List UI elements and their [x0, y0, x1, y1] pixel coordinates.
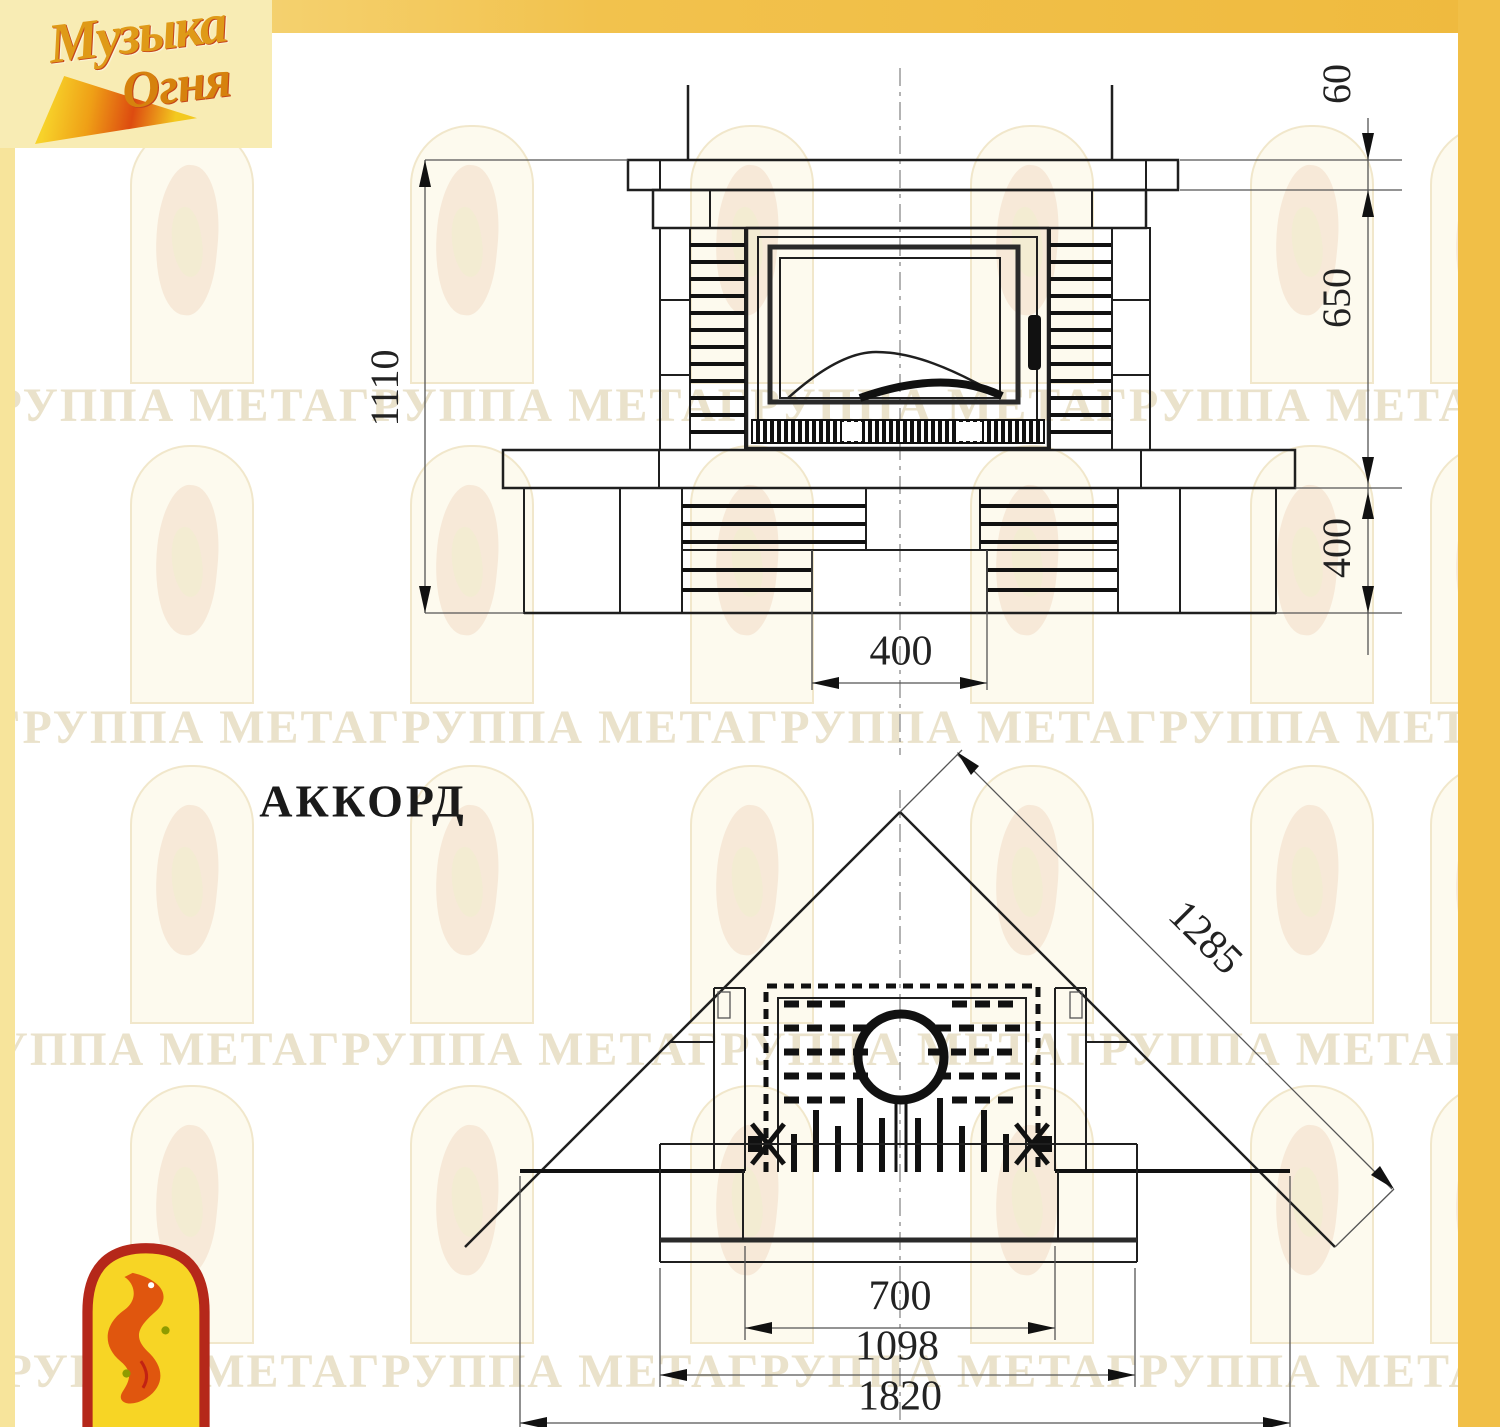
left-gold-band: [0, 0, 15, 1427]
grill-strip: [752, 420, 1044, 443]
plan-view: 1285 700 1098 1820: [465, 750, 1394, 1427]
mantel-shelf: [628, 160, 1178, 190]
dim-label-mantel-thickness: 60: [1314, 64, 1359, 104]
dim-label-base-height: 400: [1314, 518, 1359, 578]
base-slab-plan: [660, 1144, 1137, 1262]
catalog-page: ГРУППА МЕТАГРУППА МЕТАГРУППА МЕТАГРУППА …: [0, 0, 1500, 1427]
brand-logo: Музыка Огня: [0, 0, 272, 148]
arch-flame-icon: [78, 1238, 214, 1427]
firebox-door: [747, 228, 1048, 448]
dim-label-opening-width: 700: [869, 1274, 932, 1320]
model-title: АККОРД: [259, 776, 466, 827]
dim-label-body-width: 1098: [855, 1324, 939, 1370]
right-gold-band: [1458, 0, 1500, 1427]
dim-label-total-width: 1820: [858, 1374, 942, 1420]
front-view: 1110 60 650 400 400: [362, 64, 1402, 755]
brand-word-2: Огня: [119, 50, 234, 122]
fireplace-technical-drawing: 1110 60 650 400 400 АККОРД: [0, 0, 1500, 1427]
dimension-right-chain: [1180, 118, 1402, 655]
hearth-shelf: [503, 450, 1295, 488]
dim-label-upper-height: 650: [1314, 268, 1359, 328]
flue-outlet: [858, 1014, 944, 1100]
dim-label-niche-width: 400: [870, 629, 933, 675]
door-handle: [1028, 315, 1041, 370]
meta-arch-logo: [78, 1238, 214, 1427]
dim-label-total-height: 1110: [362, 349, 407, 426]
